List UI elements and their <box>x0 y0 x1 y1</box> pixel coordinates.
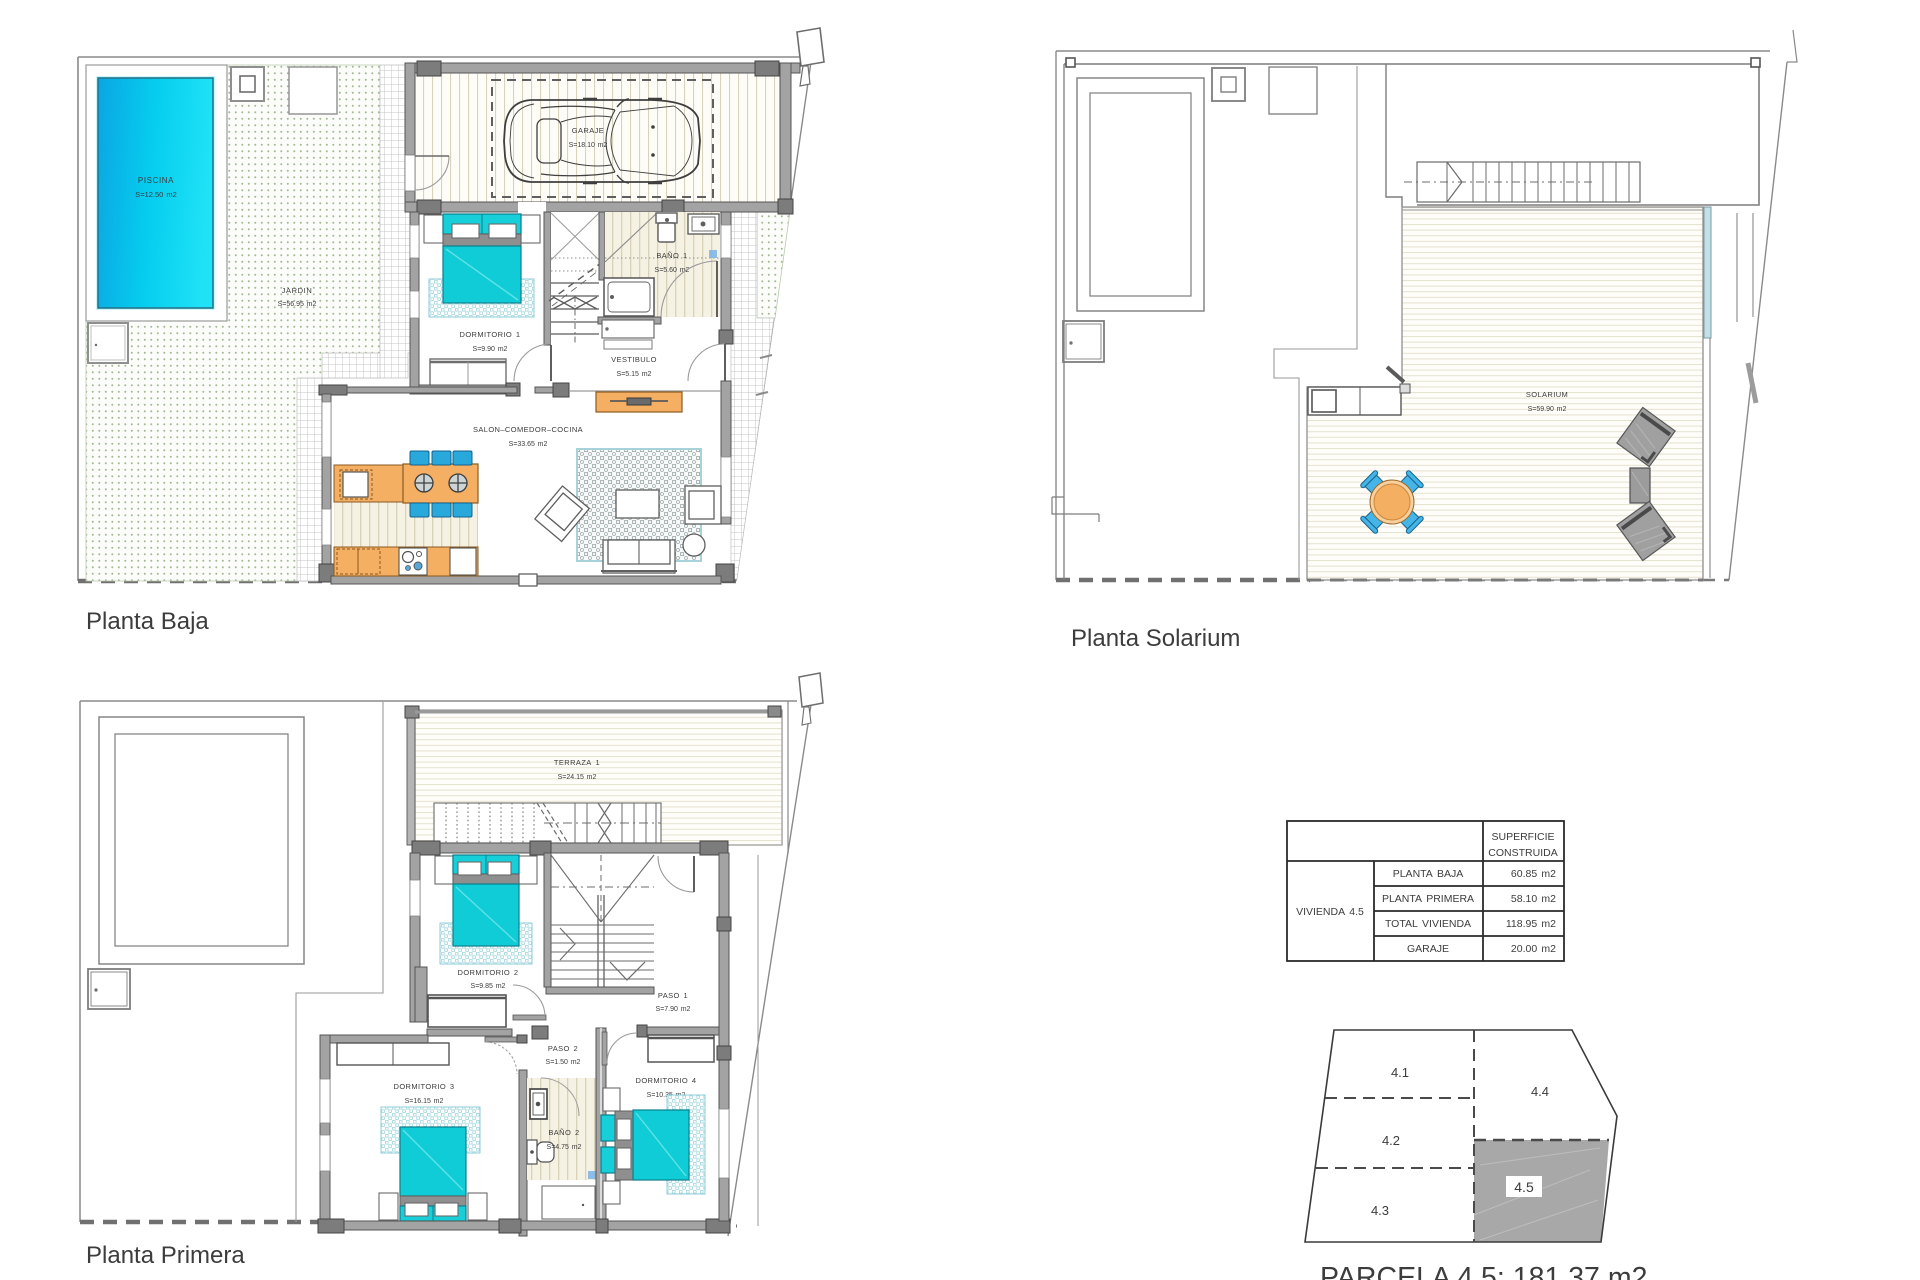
svg-text:VIVIENDA 4.5: VIVIENDA 4.5 <box>1296 906 1364 918</box>
svg-text:SALON–COMEDOR–COCINA: SALON–COMEDOR–COCINA <box>473 425 583 434</box>
svg-text:TERRAZA 1: TERRAZA 1 <box>554 758 600 767</box>
svg-text:PLANTA PRIMERA: PLANTA PRIMERA <box>1382 893 1474 905</box>
svg-text:S=9.90 m2: S=9.90 m2 <box>473 346 508 353</box>
svg-text:GARAJE: GARAJE <box>1407 943 1449 955</box>
svg-text:S=9.85 m2: S=9.85 m2 <box>471 983 506 990</box>
svg-text:S=18.10 m2: S=18.10 m2 <box>569 142 608 149</box>
svg-text:PISCINA: PISCINA <box>138 176 174 185</box>
svg-text:PASO 2: PASO 2 <box>548 1044 578 1053</box>
svg-text:4.4: 4.4 <box>1531 1084 1549 1099</box>
svg-text:BAÑO 1: BAÑO 1 <box>656 251 687 260</box>
svg-text:DORMITORIO 1: DORMITORIO 1 <box>460 330 521 339</box>
svg-text:SUPERFICIE: SUPERFICIE <box>1491 831 1554 843</box>
svg-text:CONSTRUIDA: CONSTRUIDA <box>1488 847 1557 859</box>
svg-text:S=1.50 m2: S=1.50 m2 <box>546 1059 581 1066</box>
svg-text:S=12.50 m2: S=12.50 m2 <box>135 190 177 199</box>
svg-text:S=5.15 m2: S=5.15 m2 <box>617 371 652 378</box>
svg-text:VESTIBULO: VESTIBULO <box>611 355 657 364</box>
svg-text:20.00 m2: 20.00 m2 <box>1511 943 1556 955</box>
svg-text:Planta Solarium: Planta Solarium <box>1071 625 1240 652</box>
svg-text:118.95 m2: 118.95 m2 <box>1506 918 1556 930</box>
svg-text:PASO 1: PASO 1 <box>658 991 688 1000</box>
svg-text:S=56.95 m2: S=56.95 m2 <box>278 301 317 308</box>
svg-text:4.3: 4.3 <box>1371 1203 1389 1218</box>
svg-text:PLANTA BAJA: PLANTA BAJA <box>1393 868 1464 880</box>
svg-text:S=4.75 m2: S=4.75 m2 <box>547 1144 582 1151</box>
svg-text:BAÑO 2: BAÑO 2 <box>548 1128 579 1137</box>
svg-text:S=24.15 m2: S=24.15 m2 <box>558 774 597 781</box>
svg-text:DORMITORIO 4: DORMITORIO 4 <box>636 1076 697 1085</box>
svg-text:Planta Baja: Planta Baja <box>86 608 209 635</box>
svg-text:S=5.60 m2: S=5.60 m2 <box>655 267 690 274</box>
svg-text:S=59.90 m2: S=59.90 m2 <box>1528 406 1567 413</box>
svg-text:TOTAL VIVIENDA: TOTAL VIVIENDA <box>1385 918 1471 930</box>
svg-text:PARCELA 4.5: 181.37 m2: PARCELA 4.5: 181.37 m2 <box>1320 1262 1647 1280</box>
svg-text:S=7.90 m2: S=7.90 m2 <box>656 1006 691 1013</box>
svg-text:4.2: 4.2 <box>1382 1133 1400 1148</box>
svg-text:DORMITORIO 3: DORMITORIO 3 <box>394 1082 455 1091</box>
svg-text:60.85 m2: 60.85 m2 <box>1511 868 1556 880</box>
svg-text:Planta Primera: Planta Primera <box>86 1242 245 1269</box>
svg-text:DORMITORIO 2: DORMITORIO 2 <box>458 968 519 977</box>
svg-text:S=33.65 m2: S=33.65 m2 <box>509 441 548 448</box>
svg-text:58.10 m2: 58.10 m2 <box>1511 893 1556 905</box>
svg-text:GARAJE: GARAJE <box>572 126 604 135</box>
svg-text:4.5: 4.5 <box>1514 1179 1534 1195</box>
svg-text:SOLARIUM: SOLARIUM <box>1526 390 1568 399</box>
svg-text:JARDIN: JARDIN <box>282 286 313 295</box>
svg-text:4.1: 4.1 <box>1391 1065 1409 1080</box>
svg-text:S=16.15 m2: S=16.15 m2 <box>405 1098 444 1105</box>
